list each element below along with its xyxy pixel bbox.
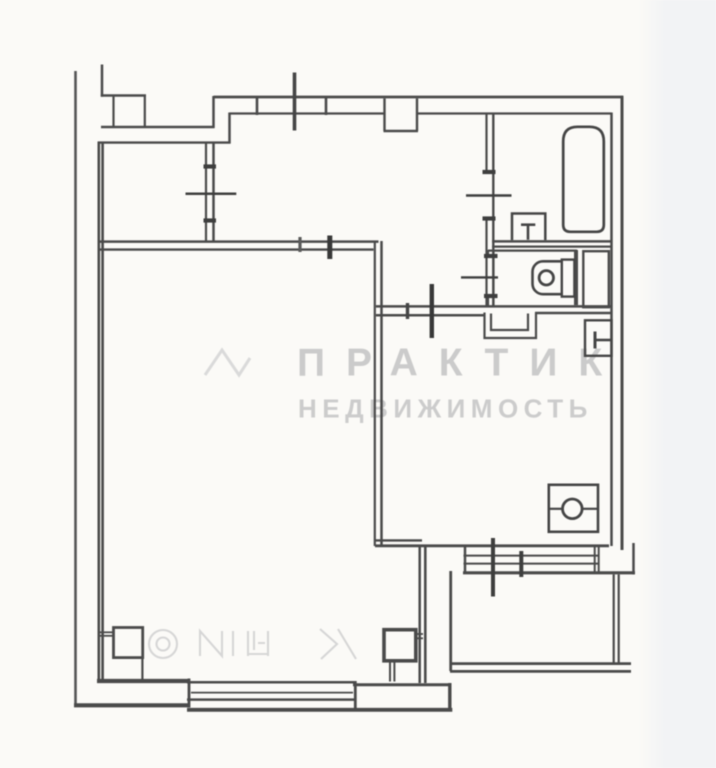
svg-text:НЕДВИЖИМОСТЬ: НЕДВИЖИМОСТЬ [298, 394, 593, 424]
svg-text:ПРАКТИК: ПРАКТИК [297, 342, 623, 385]
